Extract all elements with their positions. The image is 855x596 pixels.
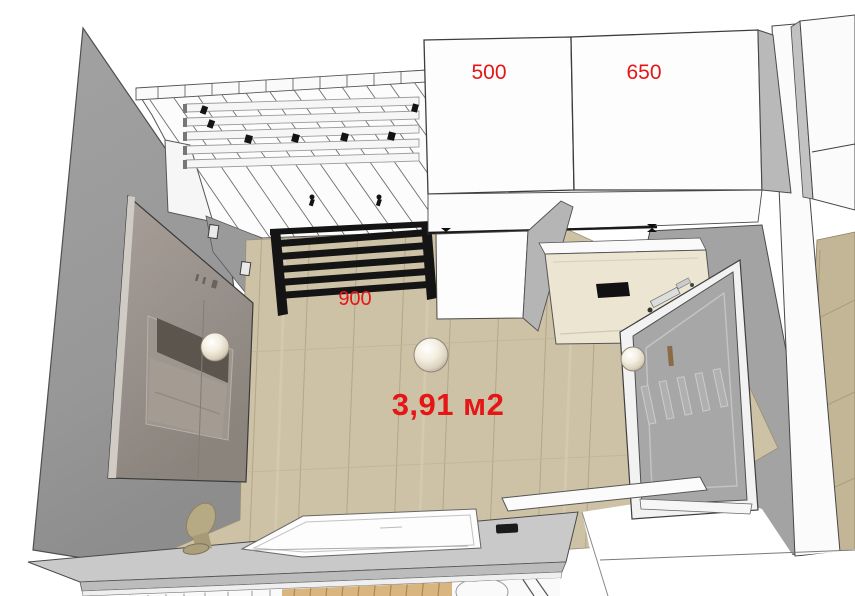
cabinet-650-top <box>571 30 762 190</box>
ceiling-light-center <box>414 338 448 372</box>
ceiling-light-door <box>621 347 645 371</box>
dimension-label-500: 500 <box>471 61 506 84</box>
lower-cabinet-front <box>436 231 528 319</box>
counter-drain <box>496 523 518 533</box>
bathroom-3d-top-view: 500 650 900 3,91 м2 <box>0 0 855 596</box>
render-viewport[interactable]: 500 650 900 3,91 м2 <box>0 0 855 596</box>
dimension-label-650: 650 <box>626 61 661 84</box>
appliance-vent <box>596 282 630 298</box>
mirror-reflected-light <box>201 333 229 361</box>
floor-area-label: 3,91 м2 <box>392 387 505 422</box>
dimension-label-900: 900 <box>338 288 371 310</box>
